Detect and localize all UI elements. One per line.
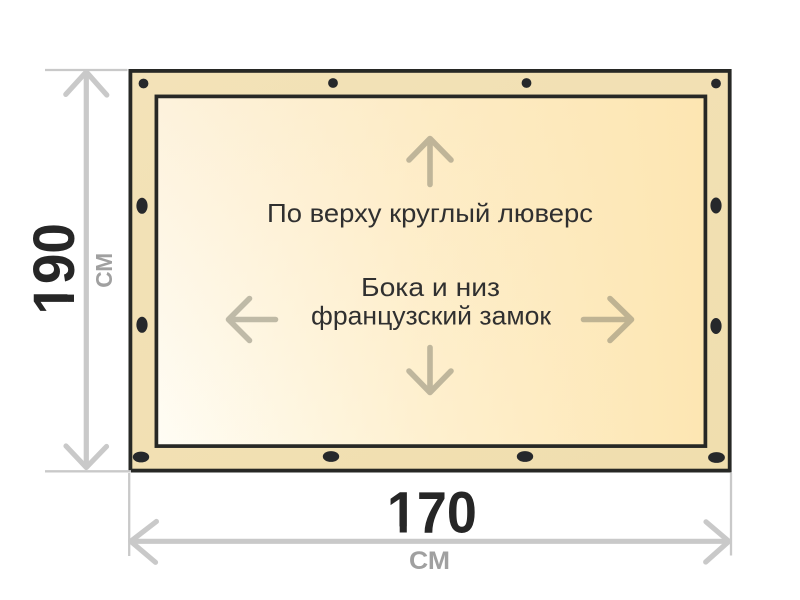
svg-text:170: 170 <box>387 481 477 546</box>
svg-text:190: 190 <box>22 223 87 315</box>
svg-text:СМ: СМ <box>91 253 117 288</box>
svg-text:По верху круглый люверс: По верху круглый люверс <box>267 198 593 228</box>
svg-text:СМ: СМ <box>409 548 450 575</box>
svg-text:Бока и низ: Бока и низ <box>361 272 500 302</box>
svg-text:французский замок: французский замок <box>311 301 552 331</box>
